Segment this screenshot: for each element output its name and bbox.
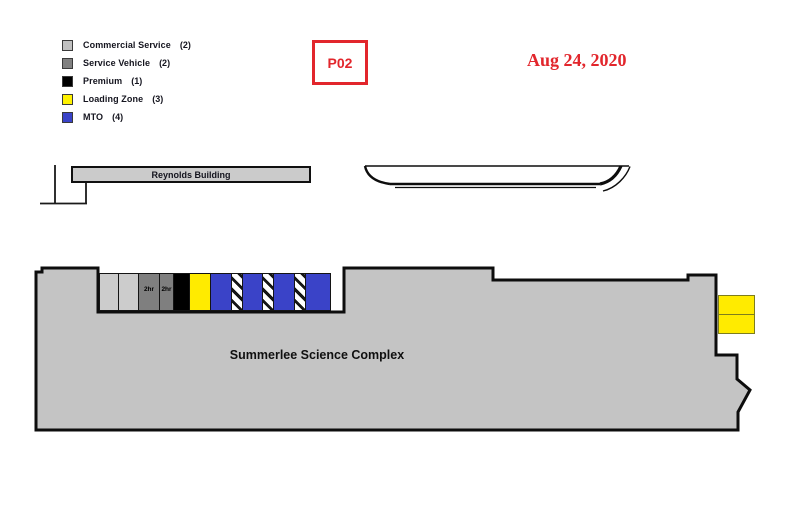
- parking-stall-row: 2hr2hr: [99, 273, 331, 311]
- road-outline: [365, 166, 630, 191]
- parking-stall-mto: [305, 273, 331, 311]
- loading-dock: [718, 295, 755, 334]
- legend-count: (2): [159, 58, 170, 68]
- legend-item-mto: MTO(4): [62, 108, 191, 126]
- parking-stall-mto: [210, 273, 232, 311]
- parking-map-canvas: Commercial Service(2)Service Vehicle(2)P…: [0, 0, 800, 508]
- legend-label: Loading Zone: [83, 94, 143, 104]
- parking-stall-premium: [173, 273, 190, 311]
- parking-stall-commercial: [99, 273, 119, 311]
- parking-stall-service: 2hr: [159, 273, 174, 311]
- map-date: Aug 24, 2020: [527, 50, 627, 71]
- legend-label: Commercial Service: [83, 40, 171, 50]
- parking-stall-mto: [242, 273, 263, 311]
- lot-id-label: P02: [328, 55, 353, 71]
- legend-swatch: [62, 94, 73, 105]
- loading-dock-cell: [718, 314, 755, 334]
- parking-stall-loading: [189, 273, 211, 311]
- legend-count: (1): [131, 76, 142, 86]
- reynolds-building: Reynolds Building: [71, 166, 311, 183]
- stall-time-limit-label: 2hr: [139, 286, 159, 293]
- legend-item-loading-zone: Loading Zone(3): [62, 90, 191, 108]
- legend-swatch: [62, 58, 73, 69]
- stall-time-limit-label: 2hr: [160, 286, 173, 293]
- legend-item-commercial-service: Commercial Service(2): [62, 36, 191, 54]
- parking-stall-commercial: [118, 273, 139, 311]
- legend-item-service-vehicle: Service Vehicle(2): [62, 54, 191, 72]
- reynolds-building-label: Reynolds Building: [151, 170, 230, 180]
- legend-label: MTO: [83, 112, 103, 122]
- parking-stall-mto: [273, 273, 295, 311]
- legend-item-premium: Premium(1): [62, 72, 191, 90]
- parking-stall-service: 2hr: [138, 273, 160, 311]
- legend: Commercial Service(2)Service Vehicle(2)P…: [62, 36, 191, 126]
- lot-id-box: P02: [312, 40, 368, 85]
- summerlee-building-label: Summerlee Science Complex: [207, 348, 427, 362]
- loading-dock-cell: [718, 295, 755, 315]
- legend-count: (2): [180, 40, 191, 50]
- legend-swatch: [62, 76, 73, 87]
- legend-swatch: [62, 40, 73, 51]
- legend-count: (4): [112, 112, 123, 122]
- legend-swatch: [62, 112, 73, 123]
- legend-count: (3): [152, 94, 163, 104]
- legend-label: Premium: [83, 76, 122, 86]
- legend-label: Service Vehicle: [83, 58, 150, 68]
